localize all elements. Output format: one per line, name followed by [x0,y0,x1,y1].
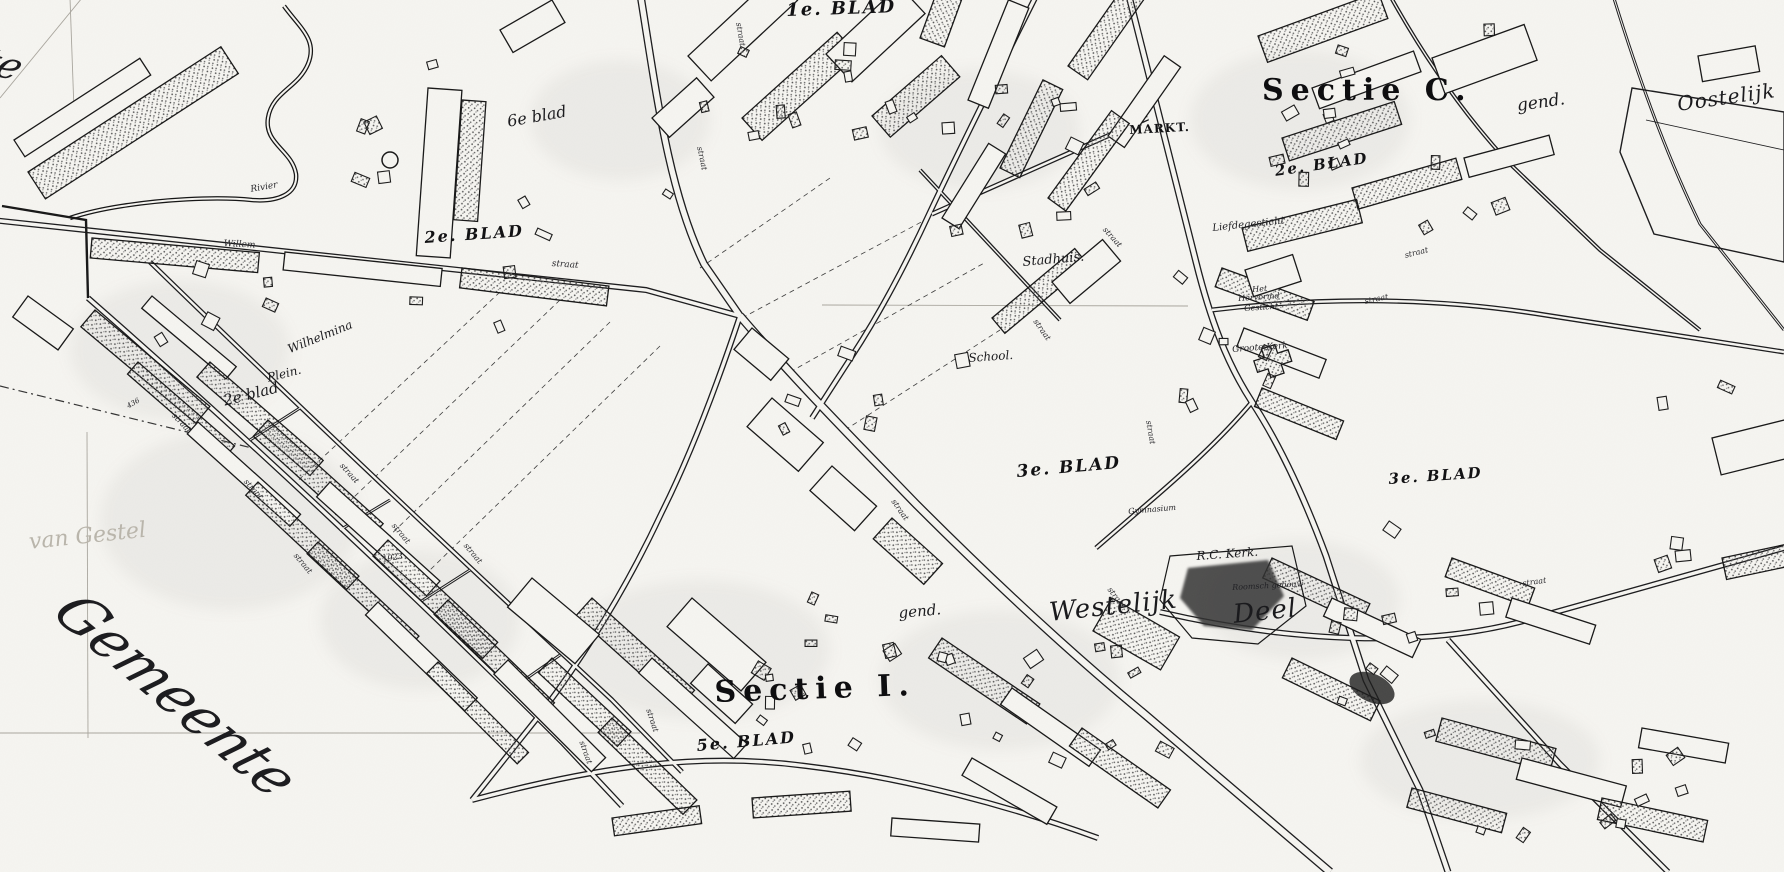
street-label-10: straat [577,740,593,765]
section-c-title: Sectie C. [1262,76,1473,106]
gestel-handwriting: van Gestel [28,520,147,554]
street-label-2: straat [695,146,708,171]
street-label-4: straat [1031,318,1051,342]
street-label-7: straat [1404,246,1429,260]
sheet-2-blad-right: 2e. BLAD [1274,151,1369,179]
parcel-number-1923: 1923 [382,552,403,563]
gemeente-script: Gemeente [41,586,309,806]
willem-street-label: Willem [224,240,256,251]
section-i-title: Sectie I. [714,671,916,708]
groote-kerk-label: Groote Kerk [1232,342,1288,355]
markt-label: MARKT. [1129,121,1190,136]
map-labels-layer: 1e. BLAD6e blad2e. BLADSectie C.MARKT.2e… [0,0,1784,872]
street-label-1: straat [734,22,746,47]
street-label-8: straat [889,498,909,522]
map-canvas: 1e. BLAD6e blad2e. BLADSectie C.MARKT.2e… [0,0,1784,872]
stadhuis-label: Stadhuis. [1022,251,1085,269]
street-label-18: straat [390,522,411,545]
sheet-5-blad: 5e. BLAD [696,729,797,754]
oostelijk-label: Oostelijk [1676,80,1777,114]
straat-willem-label: straat [551,260,578,271]
sheet-2-blad-left: 2e. BLAD [424,223,524,246]
school-label: School. [968,349,1014,364]
deel-label: Deel [1232,595,1298,628]
sheet-1-blad: 1e. BLAD [786,0,897,20]
street-label-12: straat [1522,577,1547,588]
street-label-5: straat [1144,420,1156,445]
street-label-9: straat [644,708,659,733]
liefdegesticht-label: Liefdegesticht [1212,216,1285,234]
street-label-3: straat [1101,226,1123,249]
gend-bottom: gend. [898,602,942,621]
street-label-14: straat [338,462,360,485]
sheet-3-blad-center: 3e. BLAD [1016,455,1122,481]
street-label-6: straat [1364,293,1389,306]
rc-kerk-label: R.C. Kerk. [1196,546,1258,562]
gend-top: gend. [1516,91,1566,115]
street-label-15: straat [292,552,313,575]
street-label-13: straat [242,478,264,501]
gesticht-label: Gesticht [1244,303,1278,313]
rivier-label: Rivier [250,181,278,195]
edge-script-te: te [0,42,30,86]
roomsch-gebouw-label: Roomsch gebouw [1232,580,1304,592]
wilhelmina-label: Wilhelmina [286,318,354,355]
sheet-2-blad-cursive: 2e blad [222,380,280,408]
gymnasium-label: Gymnasium [1128,504,1176,516]
street-label-17: straat [462,542,483,565]
street-label-16: straat [170,412,192,435]
sheet-3-blad-right: 3e. BLAD [1388,465,1483,487]
parcel-number-436: 436 [126,397,141,410]
sheet-6-blad-cursive: 6e blad [506,104,568,130]
